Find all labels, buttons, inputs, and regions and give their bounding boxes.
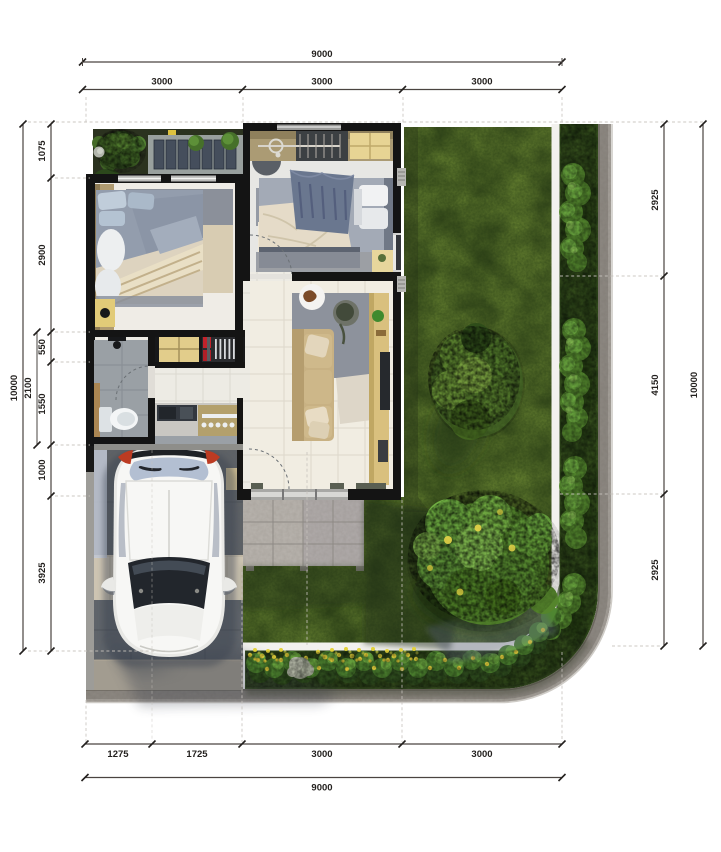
svg-text:2900: 2900: [37, 244, 48, 265]
svg-text:2925: 2925: [650, 189, 661, 211]
svg-text:1725: 1725: [186, 749, 208, 760]
svg-text:3000: 3000: [471, 749, 492, 760]
svg-text:4150: 4150: [650, 374, 661, 395]
svg-text:1275: 1275: [107, 749, 129, 760]
svg-text:9000: 9000: [311, 783, 332, 794]
svg-text:9000: 9000: [311, 49, 332, 60]
svg-text:1550: 1550: [37, 393, 48, 414]
svg-text:10000: 10000: [689, 372, 700, 398]
svg-text:10000: 10000: [9, 375, 20, 401]
svg-text:1075: 1075: [37, 140, 48, 162]
svg-text:550: 550: [37, 339, 48, 355]
svg-text:3000: 3000: [471, 77, 492, 88]
svg-text:1000: 1000: [37, 459, 48, 480]
svg-text:3000: 3000: [151, 77, 172, 88]
svg-text:3000: 3000: [311, 749, 332, 760]
svg-text:2925: 2925: [650, 559, 661, 581]
svg-text:2100: 2100: [23, 377, 34, 398]
svg-text:3925: 3925: [37, 562, 48, 584]
svg-text:3000: 3000: [311, 77, 332, 88]
